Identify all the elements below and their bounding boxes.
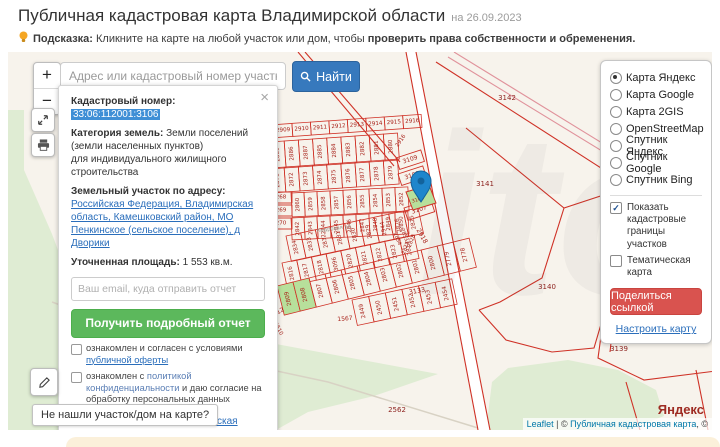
parcel-number: 2843 xyxy=(308,221,315,235)
privacy-consent-text: ознакомлен с политикой конфиденциальност… xyxy=(86,371,265,406)
parcel-number: 2874 xyxy=(317,170,324,185)
parcel-number: 2879 xyxy=(388,165,395,180)
checkbox-empty-icon xyxy=(610,255,622,267)
parcel-number: 2913 xyxy=(350,122,365,129)
parcel-number: 2816 xyxy=(287,265,296,281)
layer-option-google-sat[interactable]: Спутник Google xyxy=(610,154,702,171)
cadastral-value: 33:06:112001:3106 xyxy=(71,109,160,120)
parcel-number: 2856 xyxy=(347,194,354,209)
header: Публичная кадастровая карта Владимирской… xyxy=(18,6,522,26)
configure-map-link[interactable]: Настроить карту xyxy=(610,323,702,335)
parcel-label: 2562 xyxy=(388,406,406,414)
parcel-number: 2806 xyxy=(332,278,341,294)
parcel-number: 2882 xyxy=(359,141,366,156)
privacy-consent-row: ознакомлен с политикой конфиденциальност… xyxy=(71,371,265,406)
parcel-number: 2834 xyxy=(292,239,301,255)
offer-consent-text: ознакомлен и согласен с условиями публич… xyxy=(86,343,265,366)
radio-icon xyxy=(610,123,622,135)
offer-checkbox[interactable] xyxy=(71,344,82,355)
parcel-number: 2450 xyxy=(375,299,384,315)
parcel-number: 2453 xyxy=(425,289,434,305)
parcel-label: 3140 xyxy=(538,283,556,291)
parcel-number: 2872 xyxy=(289,172,296,187)
lightbulb-icon xyxy=(18,31,29,44)
parcel-number: 2885 xyxy=(317,144,324,159)
show-borders-checkbox-row[interactable]: ✓ Показать кадастровые границы участков xyxy=(610,202,702,251)
parcel-number: 2859 xyxy=(308,196,315,211)
fullscreen-button[interactable] xyxy=(31,108,55,132)
parcel-number: 2833 xyxy=(306,236,315,252)
parcel-number: 2878 xyxy=(374,166,381,181)
divider xyxy=(610,195,702,196)
parcel-number: 2825 xyxy=(409,214,418,230)
address-label: Земельный участок по адресу: xyxy=(71,186,226,197)
parcel-number: 2909 xyxy=(276,127,291,134)
land-category-row: Категория земель: Земли поселений (земли… xyxy=(71,127,265,179)
parcel-number: 2881 xyxy=(374,140,381,155)
get-report-button[interactable]: Получить подробный отчет xyxy=(71,309,265,338)
parcel-number: 2916 xyxy=(405,118,420,125)
parcel-number: 2855 xyxy=(360,194,367,208)
cadastral-label: Кадастровый номер: xyxy=(71,96,175,107)
parcel-info-panel: × Кадастровый номер: 33:06:112001:3106 К… xyxy=(58,85,278,430)
parcel-number: 2804 xyxy=(364,270,373,286)
source-link[interactable]: Публичная кадастровая карта xyxy=(570,419,696,429)
radio-icon xyxy=(610,157,622,169)
parcel-row: 290829092910291129122913291429152916 xyxy=(255,114,422,139)
parcel-number: 2880 xyxy=(388,139,395,154)
share-link-button[interactable]: Поделиться ссылкой xyxy=(610,288,702,315)
parcel-number: 2911 xyxy=(313,124,328,131)
parcel-number: 2873 xyxy=(303,171,310,186)
parcel-number: 2817 xyxy=(302,262,311,278)
parcel-number: 2887 xyxy=(303,145,310,160)
address-row: Земельный участок по адресу: Российская … xyxy=(71,185,265,250)
parcel-number: 2858 xyxy=(321,196,328,211)
parcel-label: 1567 xyxy=(337,315,353,323)
map-canvas[interactable]: 2908290929102911291229132914291529162888… xyxy=(8,52,712,430)
close-icon[interactable]: × xyxy=(260,90,269,105)
parcel-label: 3133 xyxy=(408,286,426,297)
parcel-number: 2805 xyxy=(348,274,357,290)
hint-period: . xyxy=(632,33,635,45)
parcel-number: 2802 xyxy=(396,262,405,278)
parcel-number: 2454 xyxy=(442,285,451,301)
measure-tool-button[interactable] xyxy=(30,368,58,396)
radio-icon xyxy=(610,140,622,152)
bottom-banner xyxy=(66,437,720,447)
pencil-icon xyxy=(38,376,51,389)
parcel-number: 2860 xyxy=(295,197,302,212)
parcel-number: 2830 xyxy=(350,227,359,243)
cadastral-number-row: Кадастровый номер: 33:06:112001:3106 xyxy=(71,95,265,121)
boundary-line xyxy=(479,208,564,310)
parcel-number: 2852 xyxy=(399,192,406,206)
parcel-number: 2886 xyxy=(289,146,296,161)
leaflet-link[interactable]: Leaflet xyxy=(527,419,554,429)
page-date: на 26.09.2023 xyxy=(451,12,521,24)
parcel-number: 2914 xyxy=(368,121,383,128)
privacy-checkbox[interactable] xyxy=(71,372,82,383)
hint-bold: проверить права собственности и обремене… xyxy=(368,33,633,45)
parcel-number: 2884 xyxy=(331,143,338,158)
print-button[interactable] xyxy=(31,133,55,157)
map-layers-panel: Карта Яндекс Карта Google Карта 2GIS Ope… xyxy=(600,60,712,344)
area-value: 1 553 кв.м. xyxy=(180,257,233,268)
hint-bar: Подсказка: Кликните на карте на любой уч… xyxy=(18,31,635,45)
parcel-number: 2778 xyxy=(460,246,469,262)
radio-icon xyxy=(610,72,622,84)
parcel-number: 2912 xyxy=(331,123,346,130)
category-value2: для индивидуального жилищного строительс… xyxy=(71,154,226,178)
area-row: Уточненная площадь: 1 553 кв.м. xyxy=(71,256,265,269)
printer-icon xyxy=(37,139,50,151)
parcel-number: 2854 xyxy=(373,193,380,208)
radio-icon xyxy=(610,174,622,186)
radio-icon xyxy=(610,89,622,101)
layer-option-yandex-map[interactable]: Карта Яндекс xyxy=(610,69,702,86)
search-button-label: Найти xyxy=(316,70,352,84)
hint-label: Подсказка: xyxy=(33,33,93,45)
parcel-label: 3142 xyxy=(498,94,516,102)
parcel-number: 2807 xyxy=(316,282,325,298)
parcel-number: 2910 xyxy=(294,126,309,133)
parcel-number: 3096 xyxy=(331,256,340,272)
address-link[interactable]: Российская Федерация, Владимирская облас… xyxy=(71,199,253,249)
parcel-number: 2800 xyxy=(428,254,437,270)
parcel-number: 2915 xyxy=(387,119,402,126)
map-marker-dot xyxy=(418,178,425,185)
parcel-label: 2916 xyxy=(395,133,408,148)
layer-option-2gis-map[interactable]: Карта 2GIS xyxy=(610,103,702,120)
category-label: Категория земель: xyxy=(71,128,163,139)
zoom-in-button[interactable]: + xyxy=(34,63,60,88)
radio-icon xyxy=(610,106,622,118)
parcel-number: 2820 xyxy=(346,253,355,269)
parcel-number: 2818 xyxy=(317,259,326,275)
search-icon xyxy=(300,71,311,82)
parcel-number: 2801 xyxy=(412,258,421,274)
parcel-number: 2803 xyxy=(380,266,389,282)
parcel-number: 2876 xyxy=(345,168,352,183)
checkbox-checked-icon: ✓ xyxy=(610,202,622,214)
expand-arrows-icon xyxy=(37,114,49,126)
thematic-checkbox-row[interactable]: Тематическая карта xyxy=(610,255,702,279)
parcel-number: 2877 xyxy=(359,167,366,182)
offer-consent-row: ознакомлен и согласен с условиями публич… xyxy=(71,343,265,366)
not-found-tooltip[interactable]: Не нашли участок/дом на карте? xyxy=(32,404,218,426)
offer-link[interactable]: публичной оферты xyxy=(86,355,168,365)
parcel-number: 2451 xyxy=(392,296,401,312)
layer-option-google-map[interactable]: Карта Google xyxy=(610,86,702,103)
parcel-number: 2883 xyxy=(345,142,352,157)
parcel-label: 3139 xyxy=(610,345,628,353)
hint-text: Кликните на карте на любой участок или д… xyxy=(93,33,368,45)
page-title: Публичная кадастровая карта Владимирской… xyxy=(18,6,445,25)
get-report-label: Получить подробный отчет xyxy=(85,316,250,332)
parcel-number: 2857 xyxy=(334,196,341,210)
map-attribution: Leaflet | © Публичная кадастровая карта,… xyxy=(523,418,712,430)
parcel-number: 2853 xyxy=(386,193,393,207)
parcel-number: 2832 xyxy=(321,233,330,248)
parcel-number: 2449 xyxy=(358,303,367,319)
layer-option-bing-sat[interactable]: Спутник Bing xyxy=(610,171,702,188)
parcel-number: 2848 xyxy=(373,217,380,232)
search-button[interactable]: Найти xyxy=(292,61,360,92)
email-input[interactable] xyxy=(71,277,265,301)
parcel-number: 2875 xyxy=(331,169,338,184)
parcel-label: 3141 xyxy=(476,180,494,188)
yandex-logo: Яндекс xyxy=(658,402,704,417)
area-label: Уточненная площадь: xyxy=(71,257,180,268)
